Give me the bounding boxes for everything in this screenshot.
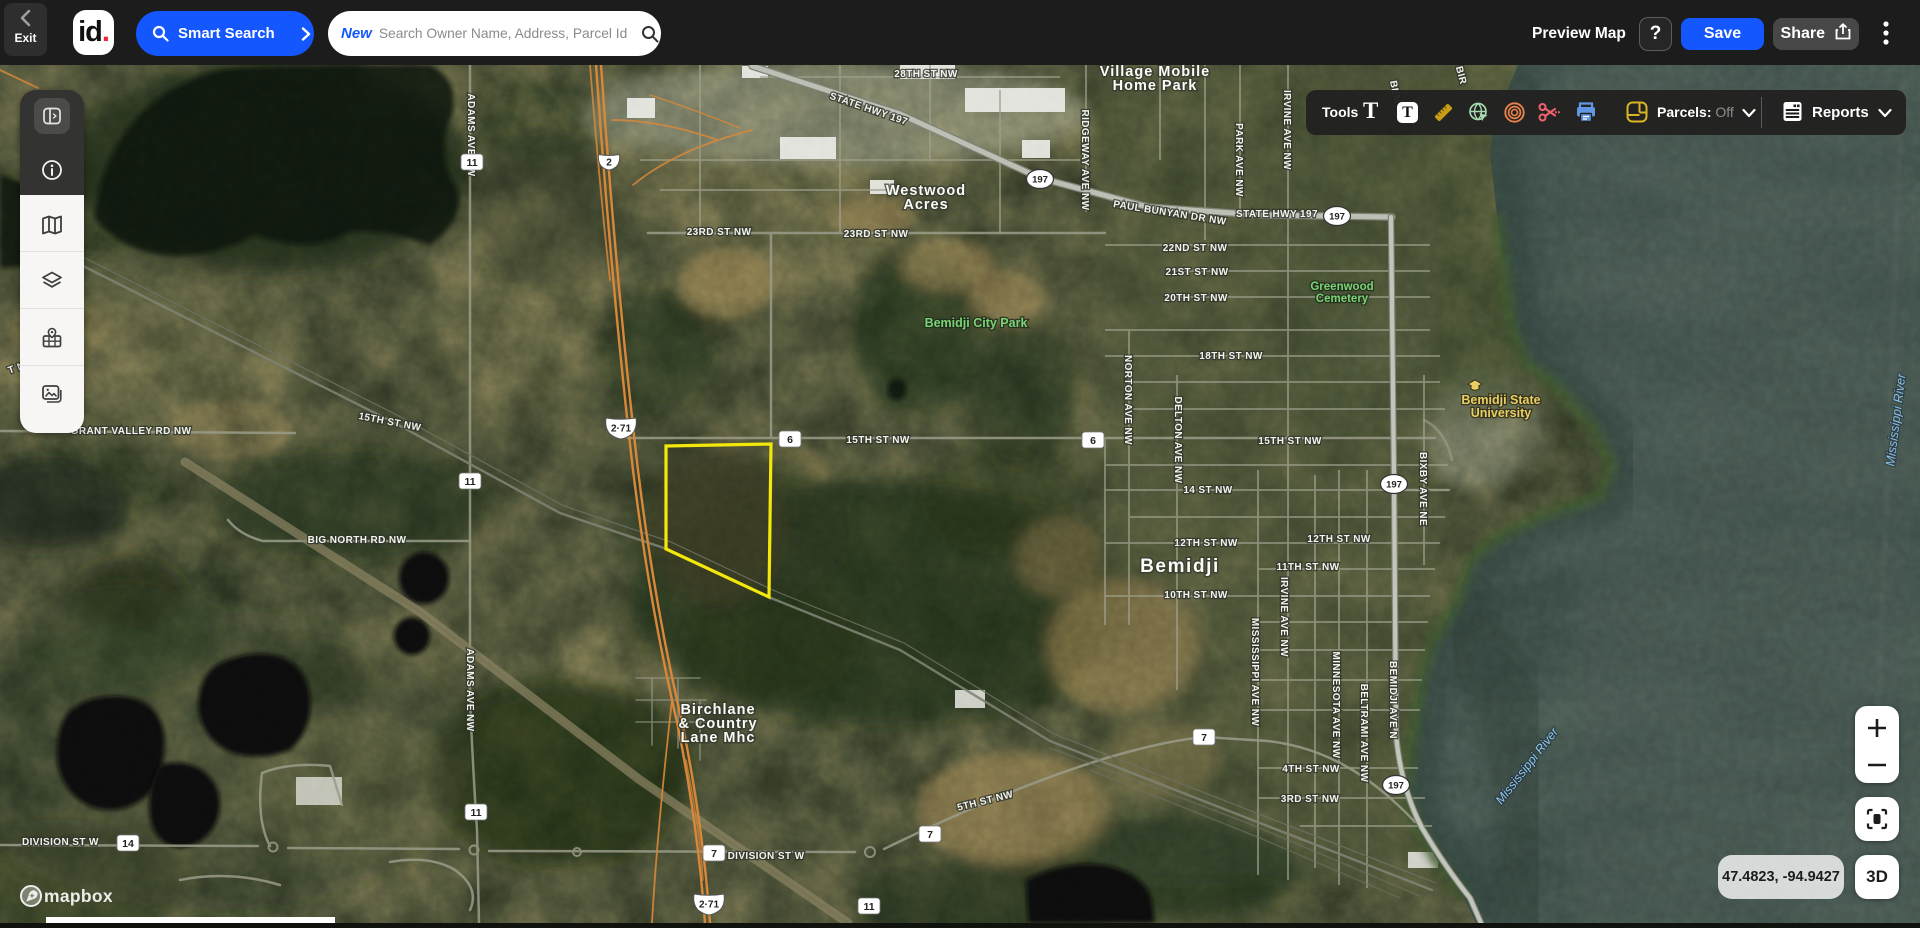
- svg-text:BEMIDJI AVE N: BEMIDJI AVE N: [1387, 661, 1398, 739]
- svg-text:GRANT VALLEY RD NW: GRANT VALLEY RD NW: [71, 426, 192, 437]
- svg-text:2·71: 2·71: [611, 424, 631, 435]
- svg-text:DIVISION ST W: DIVISION ST W: [728, 851, 805, 862]
- svg-text:Cemetery: Cemetery: [1316, 293, 1369, 305]
- svg-text:STATE HWY 197: STATE HWY 197: [1236, 209, 1318, 220]
- svg-text:23RD ST NW: 23RD ST NW: [687, 227, 752, 238]
- svg-text:28TH ST NW: 28TH ST NW: [894, 69, 958, 80]
- svg-text:ADAMS AVE NW: ADAMS AVE NW: [464, 648, 475, 731]
- svg-text:Bemidji State: Bemidji State: [1461, 393, 1540, 407]
- svg-text:20TH ST NW: 20TH ST NW: [1164, 293, 1228, 304]
- svg-text:2: 2: [606, 158, 612, 169]
- svg-text:6: 6: [1090, 435, 1096, 447]
- svg-text:BIXBY AVE NE: BIXBY AVE NE: [1417, 452, 1428, 526]
- svg-text:11TH ST NW: 11TH ST NW: [1277, 562, 1340, 573]
- svg-text:DELTON AVE NW: DELTON AVE NW: [1172, 396, 1183, 483]
- svg-text:7: 7: [1201, 732, 1207, 744]
- svg-text:PARK AVE NW: PARK AVE NW: [1233, 123, 1244, 197]
- svg-text:IRVINE AVE NW: IRVINE AVE NW: [1278, 577, 1289, 657]
- svg-text:11: 11: [464, 476, 475, 488]
- svg-text:11: 11: [470, 807, 481, 819]
- svg-text:University: University: [1471, 406, 1531, 420]
- svg-text:197: 197: [1032, 175, 1048, 186]
- svg-text:DIVISION ST W: DIVISION ST W: [22, 837, 99, 848]
- svg-text:22ND ST NW: 22ND ST NW: [1163, 243, 1228, 254]
- svg-text:12TH ST NW: 12TH ST NW: [1307, 534, 1371, 545]
- svg-text:RIDGEWAY AVE NW: RIDGEWAY AVE NW: [1079, 109, 1090, 210]
- svg-text:BIG NORTH RD NW: BIG NORTH RD NW: [308, 535, 407, 546]
- svg-text:Acres: Acres: [903, 197, 948, 213]
- svg-text:15TH ST NW: 15TH ST NW: [846, 435, 910, 446]
- svg-text:Bemidji: Bemidji: [1140, 556, 1220, 577]
- svg-text:23RD ST NW: 23RD ST NW: [844, 229, 909, 240]
- svg-text:14: 14: [122, 838, 134, 850]
- svg-text:MINNESOTA AVE NW: MINNESOTA AVE NW: [1330, 652, 1341, 759]
- svg-text:Greenwood: Greenwood: [1310, 281, 1373, 293]
- svg-text:12TH ST NW: 12TH ST NW: [1174, 538, 1238, 549]
- svg-text:6: 6: [787, 434, 793, 446]
- svg-text:2·71: 2·71: [699, 900, 719, 911]
- svg-text:15TH ST NW: 15TH ST NW: [1258, 436, 1322, 447]
- svg-text:21ST ST NW: 21ST ST NW: [1166, 267, 1229, 278]
- svg-text:Home Park: Home Park: [1113, 78, 1198, 94]
- svg-text:10TH ST NW: 10TH ST NW: [1164, 590, 1228, 601]
- svg-text:18TH ST NW: 18TH ST NW: [1199, 351, 1263, 362]
- svg-text:4TH ST NW: 4TH ST NW: [1282, 764, 1340, 775]
- svg-text:MISSISSIPPI AVE NW: MISSISSIPPI AVE NW: [1249, 618, 1260, 726]
- svg-text:197: 197: [1388, 781, 1404, 792]
- svg-text:11: 11: [863, 901, 874, 913]
- svg-text:11: 11: [466, 157, 477, 169]
- svg-text:7: 7: [711, 848, 717, 860]
- svg-text:NORTON AVE NW: NORTON AVE NW: [1122, 355, 1133, 445]
- svg-text:IRVINE AVE NW: IRVINE AVE NW: [1281, 90, 1292, 170]
- svg-text:mapbox: mapbox: [44, 886, 112, 906]
- svg-text:Lane Mhc: Lane Mhc: [681, 730, 756, 746]
- svg-text:197: 197: [1329, 212, 1345, 223]
- svg-text:Bemidji City Park: Bemidji City Park: [925, 316, 1028, 330]
- svg-text:7: 7: [927, 829, 933, 841]
- svg-text:3RD ST NW: 3RD ST NW: [1281, 794, 1340, 805]
- svg-text:197: 197: [1386, 480, 1402, 491]
- svg-text:14 ST NW: 14 ST NW: [1183, 485, 1232, 496]
- svg-text:BELTRAMI AVE NW: BELTRAMI AVE NW: [1358, 684, 1369, 783]
